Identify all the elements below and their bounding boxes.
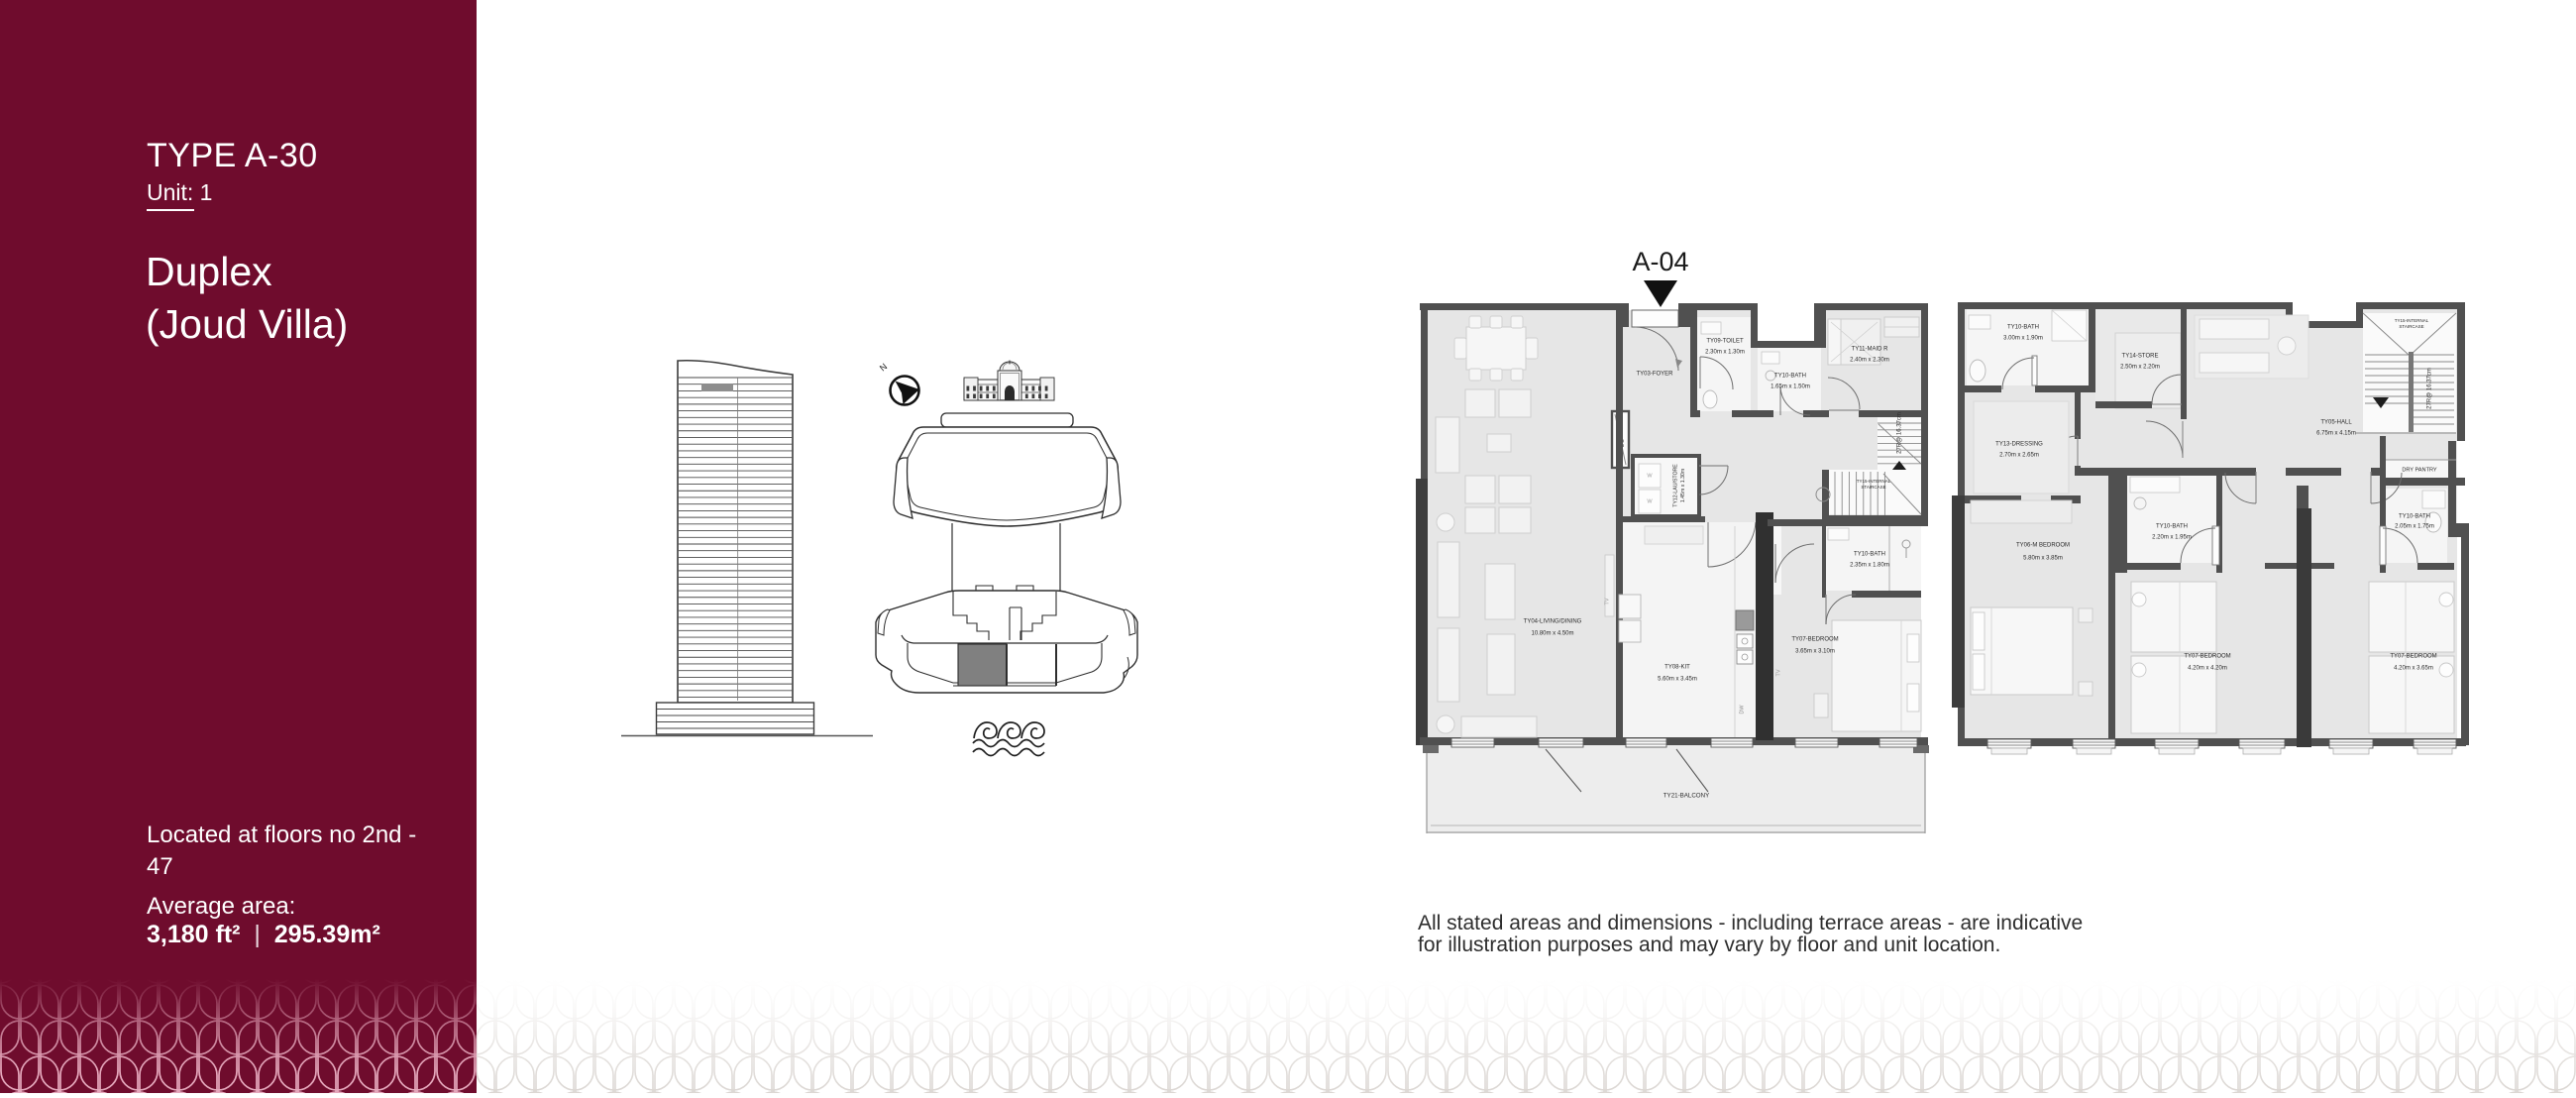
svg-text:STAIRCASE: STAIRCASE xyxy=(1861,485,1885,490)
svg-text:2.40m x 2.30m: 2.40m x 2.30m xyxy=(1850,358,1889,364)
svg-text:N: N xyxy=(878,362,889,374)
svg-text:TY10-BATH: TY10-BATH xyxy=(2156,524,2188,530)
svg-text:TY03-FOYER: TY03-FOYER xyxy=(1636,372,1673,378)
svg-text:2.20m x 1.95m: 2.20m x 1.95m xyxy=(2152,535,2192,541)
svg-text:1.65m x 1.50m: 1.65m x 1.50m xyxy=(1771,384,1810,390)
svg-text:2.30m x 1.30m: 2.30m x 1.30m xyxy=(1705,350,1745,356)
svg-text:4.20m x 3.65m: 4.20m x 3.65m xyxy=(2394,666,2433,672)
svg-text:5.80m x 3.85m: 5.80m x 3.85m xyxy=(2023,556,2063,562)
svg-text:5.60m x 3.45m: 5.60m x 3.45m xyxy=(1658,677,1697,683)
svg-text:TY15-INTERNAL: TY15-INTERNAL xyxy=(2395,318,2429,323)
svg-text:A-04: A-04 xyxy=(1632,247,1688,276)
svg-text:TY21-BALCONY: TY21-BALCONY xyxy=(1664,793,1709,800)
svg-text:10.80m x 4.50m: 10.80m x 4.50m xyxy=(1531,631,1573,637)
svg-text:2.70m x 2.65m: 2.70m x 2.65m xyxy=(1999,453,2039,459)
svg-text:2.35m x 1.80m: 2.35m x 1.80m xyxy=(1850,563,1889,569)
svg-text:TY05-HALL: TY05-HALL xyxy=(2320,420,2352,426)
svg-text:TY15-INTERNAL: TY15-INTERNAL xyxy=(1857,479,1891,484)
svg-text:TY04-LIVING/DINING: TY04-LIVING/DINING xyxy=(1524,619,1582,625)
svg-text:W: W xyxy=(1647,473,1653,479)
svg-text:TY09-TOILET: TY09-TOILET xyxy=(1706,339,1744,345)
svg-text:TY08-KIT: TY08-KIT xyxy=(1664,665,1690,671)
svg-text:6.75m x 4.15m: 6.75m x 4.15m xyxy=(2316,431,2356,437)
svg-text:TY11-MAID R: TY11-MAID R xyxy=(1852,347,1889,353)
svg-text:2.05m x 1.75m: 2.05m x 1.75m xyxy=(2395,524,2434,530)
svg-text:TY07-BEDROOM: TY07-BEDROOM xyxy=(2390,654,2436,660)
svg-text:DW: DW xyxy=(1739,705,1745,714)
svg-text:1.45m x 1.30m: 1.45m x 1.30m xyxy=(1680,469,1686,502)
svg-text:TV: TV xyxy=(1604,598,1610,604)
svg-text:TY10-BATH: TY10-BATH xyxy=(1854,552,1885,558)
svg-text:TY07-BEDROOM: TY07-BEDROOM xyxy=(1791,637,1838,643)
svg-text:TY12-LAU/STORE: TY12-LAU/STORE xyxy=(1673,464,1679,507)
svg-text:W: W xyxy=(1647,498,1653,504)
svg-text:TY14-STORE: TY14-STORE xyxy=(2122,354,2159,360)
svg-text:27R@ 16.37cm: 27R@ 16.37cm xyxy=(1897,412,1903,454)
svg-text:STAIRCASE: STAIRCASE xyxy=(2399,324,2423,329)
svg-text:27R@ 16.37cm: 27R@ 16.37cm xyxy=(2427,368,2433,409)
svg-text:TY06-M BEDROOM: TY06-M BEDROOM xyxy=(2016,543,2070,549)
svg-text:TV: TV xyxy=(1775,669,1781,676)
svg-text:TY13-DRESSING: TY13-DRESSING xyxy=(1995,442,2043,448)
svg-text:3.65m x 3.10m: 3.65m x 3.10m xyxy=(1795,649,1835,655)
svg-text:3.00m x 1.90m: 3.00m x 1.90m xyxy=(2003,336,2043,342)
svg-text:TY10-BATH: TY10-BATH xyxy=(2399,514,2430,520)
svg-text:4.20m x 4.20m: 4.20m x 4.20m xyxy=(2188,666,2227,672)
svg-text:2.50m x 2.20m: 2.50m x 2.20m xyxy=(2120,365,2160,371)
svg-text:TY07-BEDROOM: TY07-BEDROOM xyxy=(2184,654,2230,660)
svg-text:DRY PANTRY: DRY PANTRY xyxy=(2402,467,2437,473)
svg-text:TY10-BATH: TY10-BATH xyxy=(1774,374,1806,380)
svg-text:TY10-BATH: TY10-BATH xyxy=(2007,325,2039,331)
